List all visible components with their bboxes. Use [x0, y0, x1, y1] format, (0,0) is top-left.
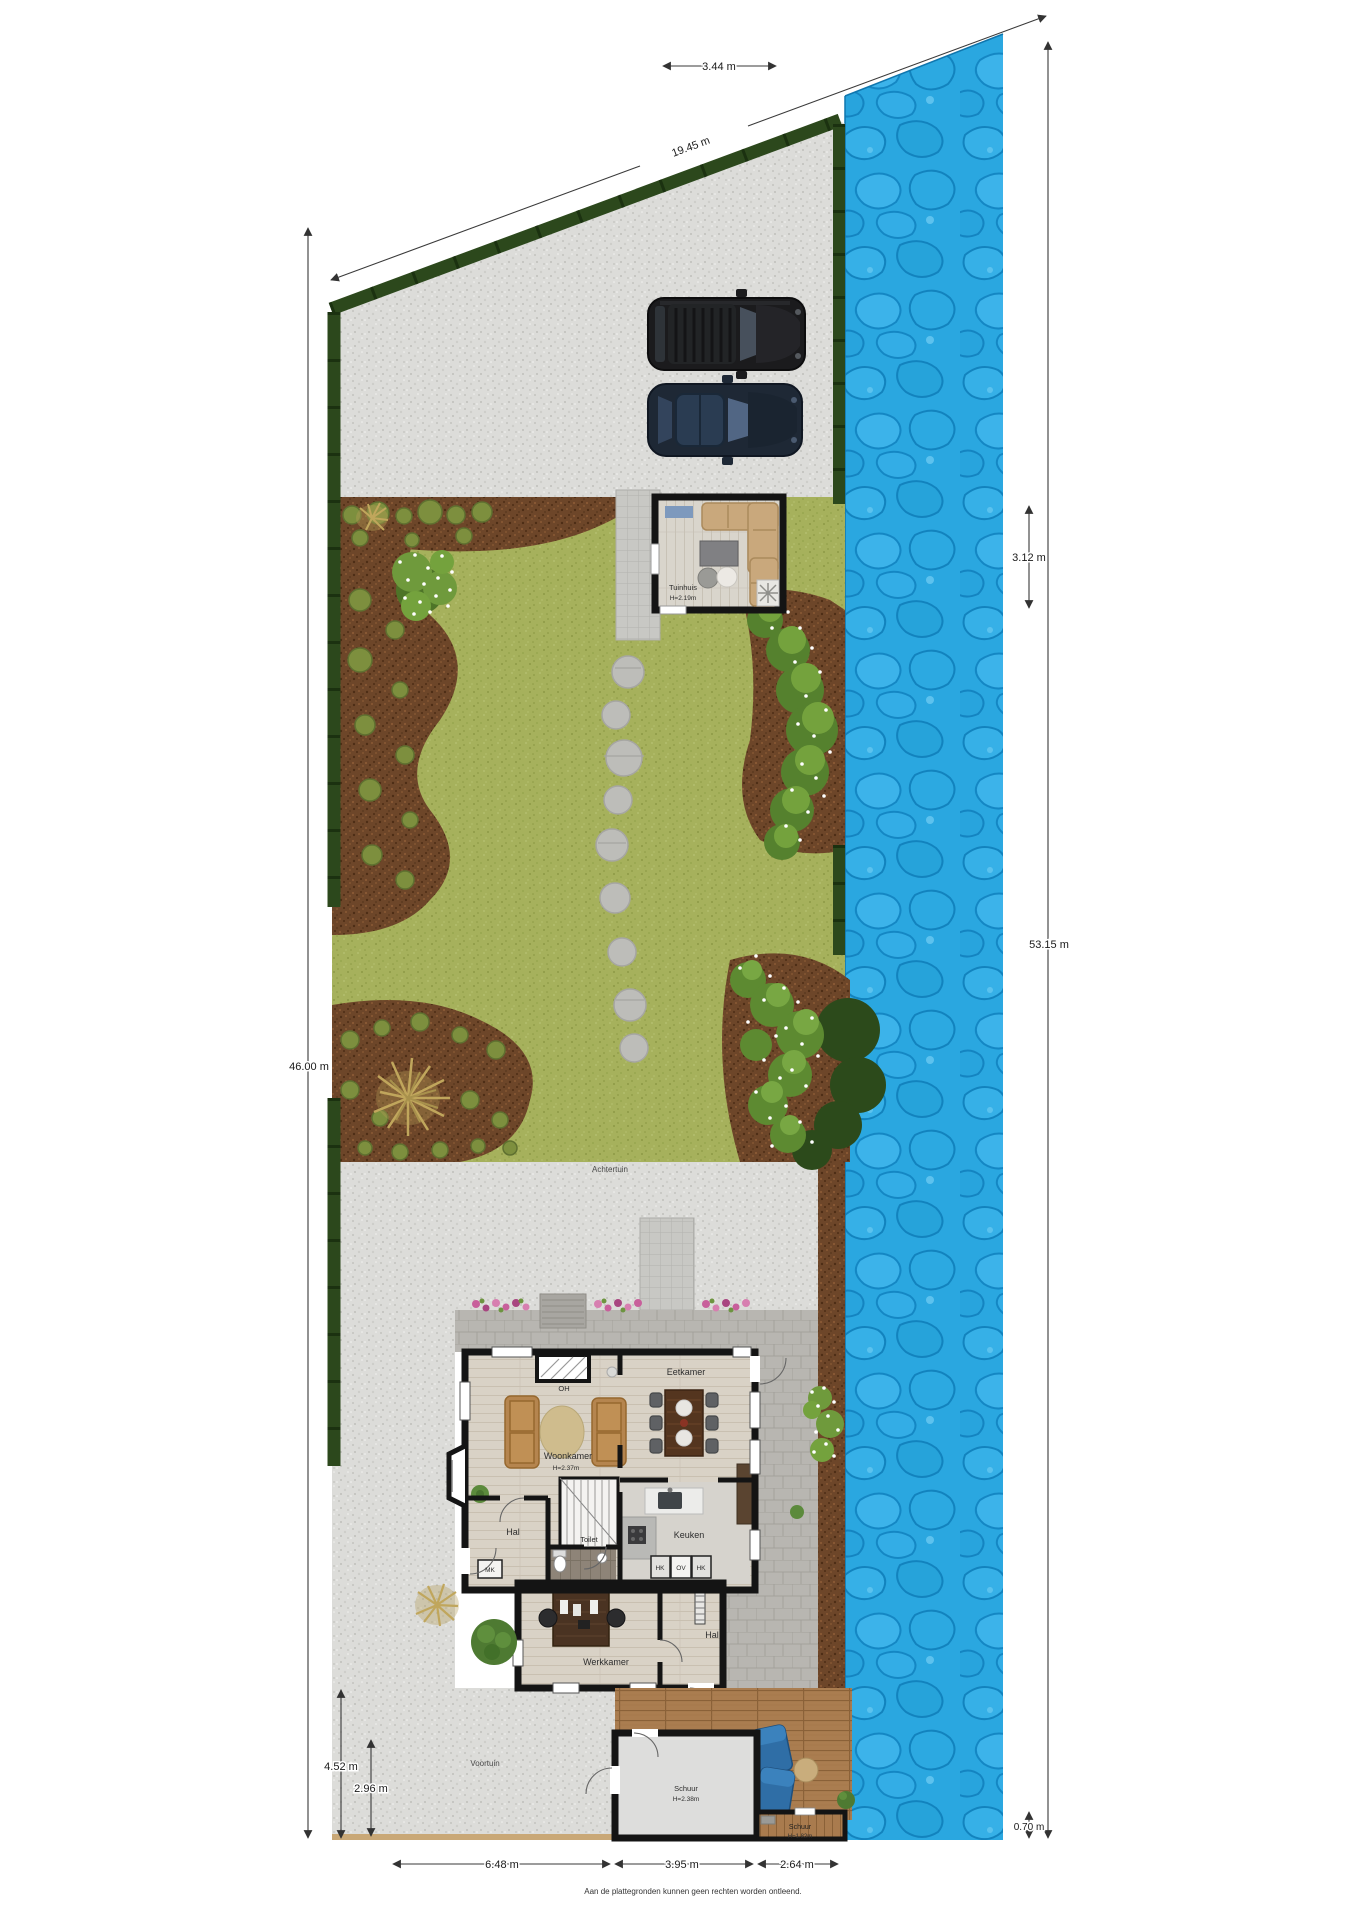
kitchen-counter — [620, 1517, 656, 1559]
dim-front-inner: 2.96 m — [354, 1783, 388, 1795]
radiator — [695, 1590, 705, 1624]
toilet-label: Toilet — [580, 1535, 598, 1544]
hk1-label: HK — [655, 1565, 665, 1572]
light-fixture — [607, 1367, 617, 1377]
backyard-label: Achtertuin — [592, 1165, 628, 1174]
fireplace — [537, 1355, 589, 1381]
fireplace-label: OH — [558, 1384, 569, 1393]
dim-water-top: 3.12 m — [1012, 552, 1046, 564]
shed-small: Schuur H=1.82m — [757, 1808, 845, 1840]
deck-table — [794, 1758, 818, 1782]
tuinhuis-label: Tuinhuis — [669, 583, 697, 592]
hal-label: Hal — [506, 1527, 520, 1537]
dim-left-total: 46.00 m — [289, 1061, 329, 1073]
dining-table — [665, 1390, 703, 1456]
shed-large-label: Schuur — [674, 1784, 698, 1793]
car-sedan — [648, 375, 802, 465]
dim-front-height: 4.52 m — [324, 1761, 358, 1773]
tuinhuis-rug — [665, 506, 693, 518]
keuken-label: Keuken — [674, 1530, 705, 1540]
garden-house: Tuinhuis H=2.19m — [651, 497, 783, 614]
dim-water-bottom: 0.70 m — [1014, 1822, 1045, 1833]
werkkamer-label: Werkkamer — [583, 1657, 629, 1667]
tuinhuis-pouf — [717, 567, 737, 587]
hal2-label: Hal — [705, 1630, 719, 1640]
car-suv — [648, 289, 805, 379]
site-plan: Tuinhuis H=2.19m — [0, 0, 1358, 1920]
shed-small-label: Schuur — [789, 1824, 812, 1831]
eetkamer-label: Eetkamer — [667, 1367, 706, 1377]
shed-large: Schuur H=2.38m — [586, 1729, 757, 1838]
ov-label: OV — [676, 1565, 686, 1572]
backyard-path — [640, 1218, 694, 1312]
kitchen-island — [645, 1488, 703, 1515]
hk2-label: HK — [696, 1565, 706, 1572]
tuinhuis-pouf — [698, 568, 718, 588]
dim-bottom-left: 6.48 m — [485, 1859, 519, 1871]
shed-bench — [761, 1816, 775, 1824]
terrace-doormat — [540, 1294, 586, 1328]
shed-large-height: H=2.38m — [673, 1796, 700, 1803]
mk-label: MK — [485, 1567, 495, 1574]
dim-bottom-mid: 3.95 m — [665, 1859, 699, 1871]
woonkamer-height: H=2.37m — [553, 1465, 580, 1472]
tuinhuis-table — [700, 541, 738, 566]
water-canal — [845, 34, 1003, 1840]
front-curb — [332, 1834, 615, 1840]
dim-top-width: 3.44 m — [702, 61, 736, 73]
dim-bottom-right: 2.64 m — [780, 1859, 814, 1871]
disclaimer: Aan de plattegronden kunnen geen rechten… — [584, 1887, 802, 1896]
tuinhuis-height: H=2.19m — [670, 595, 697, 602]
dim-right-total: 53.15 m — [1029, 939, 1069, 951]
woonkamer-label: Woonkamer — [544, 1451, 592, 1461]
shed-small-height: H=1.82m — [788, 1834, 813, 1840]
tuinhuis-floor-medallion — [757, 580, 779, 606]
site-plan-drawing: Tuinhuis H=2.19m — [0, 0, 1358, 1920]
garden-bush-left — [471, 1619, 517, 1665]
frontyard-label: Voortuin — [470, 1759, 499, 1768]
